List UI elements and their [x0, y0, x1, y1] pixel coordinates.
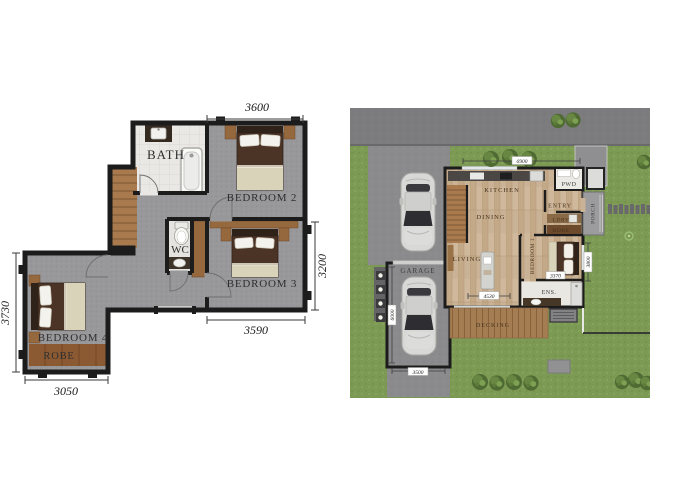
label-bedroom1: BEDROOM 1 — [530, 238, 536, 274]
dim-bedroom1: 3370 — [546, 272, 565, 280]
label-decking: DECKING — [476, 323, 510, 329]
dim-garage-depth: 6000 — [388, 305, 396, 325]
bedroom3-shelf — [210, 221, 298, 228]
dim-bedroom4-width: 3050 — [53, 384, 78, 398]
road — [350, 108, 650, 146]
dim-side-setback: 3800 — [584, 252, 592, 272]
svg-text:6900: 6900 — [517, 159, 528, 165]
label-ensuite: ENS. — [542, 290, 557, 296]
site-plan: 6900 6000 3500 4530 3370 3800 KITCHEN DI… — [350, 95, 650, 425]
svg-text:3800: 3800 — [586, 256, 592, 268]
label-porch: PORCH — [591, 203, 597, 224]
dim-bedroom4-depth: 3730 — [0, 301, 12, 326]
kitchen-window — [462, 166, 517, 169]
car-garage-icon — [401, 277, 438, 355]
toilet — [175, 222, 189, 245]
bath-vanity — [145, 125, 172, 142]
garden-lights — [374, 267, 387, 322]
svg-text:6000: 6000 — [390, 309, 396, 320]
concrete-pad — [548, 360, 570, 373]
staircase — [110, 167, 137, 248]
dim-house-width: 6900 — [512, 157, 532, 165]
svg-text:4530: 4530 — [484, 293, 495, 300]
label-living: LIVING — [453, 256, 481, 263]
label-bath: BATH — [147, 147, 185, 162]
stairs-ground — [447, 185, 467, 243]
car-driveway-icon — [400, 173, 437, 251]
label-robe-ground: ROBE — [553, 228, 570, 234]
house — [445, 166, 604, 307]
bed-bedroom1 — [549, 242, 579, 275]
label-laundry: LDRY — [553, 217, 570, 223]
label-powder: PWD — [562, 182, 577, 188]
label-bedroom2: BEDROOM 2 — [227, 192, 297, 204]
label-wc: WC — [171, 244, 189, 256]
floor-plan-page: 3600 3200 3590 3730 3050 BATH BEDROOM 2 … — [0, 0, 700, 500]
dim-living: 4530 — [479, 292, 499, 300]
store-pad — [587, 168, 604, 189]
first-floor-plan: 3600 3200 3590 3730 3050 BATH BEDROOM 2 … — [0, 95, 330, 405]
label-entry: ENTRY — [548, 204, 572, 210]
label-bedroom4: BEDROOM 4 — [38, 332, 108, 344]
kitchen-bench — [448, 171, 545, 181]
ac-unit — [550, 309, 577, 322]
wc-basin — [168, 257, 191, 269]
bedroom3-wardrobe — [192, 221, 206, 277]
island-bench — [481, 252, 494, 289]
label-kitchen: KITCHEN — [484, 187, 520, 194]
svg-text:3370: 3370 — [549, 274, 561, 280]
label-dining: DINING — [476, 214, 505, 221]
label-garage: GARAGE — [400, 267, 435, 275]
label-robe: ROBE — [43, 351, 74, 362]
dim-garage-width: 3500 — [408, 368, 428, 376]
dim-bedroom3-width: 3590 — [243, 323, 268, 337]
dim-bedroom3-depth: 3200 — [315, 254, 329, 279]
front-door-opening — [581, 198, 586, 212]
svg-text:3500: 3500 — [412, 370, 424, 376]
dim-bedroom2-width: 3600 — [244, 100, 269, 114]
label-bedroom3: BEDROOM 3 — [227, 278, 297, 290]
